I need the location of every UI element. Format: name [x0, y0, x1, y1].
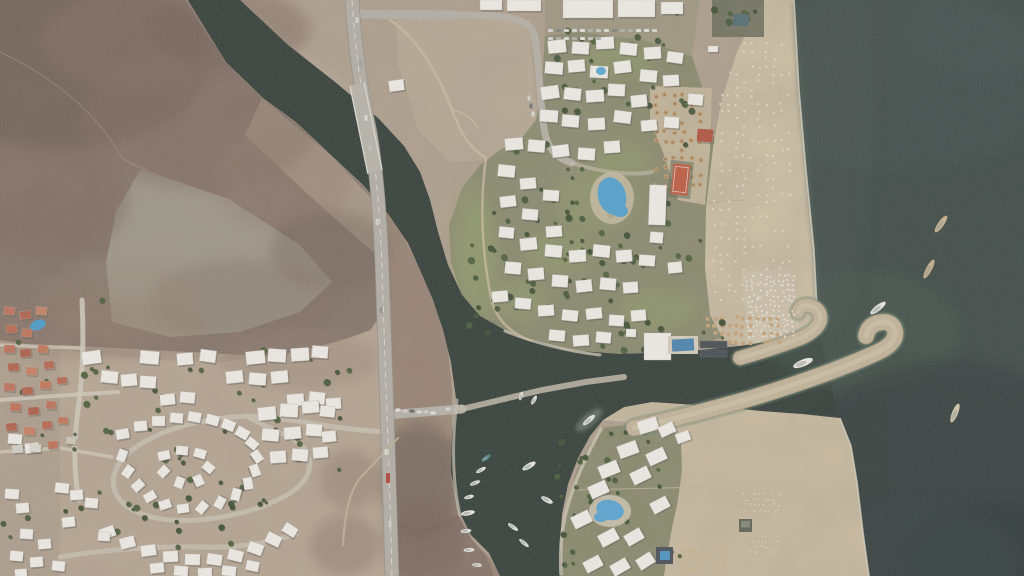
- satellite-image: [0, 0, 1024, 576]
- image-grain-overlay: [0, 0, 1024, 576]
- satellite-map-viewport[interactable]: [0, 0, 1024, 576]
